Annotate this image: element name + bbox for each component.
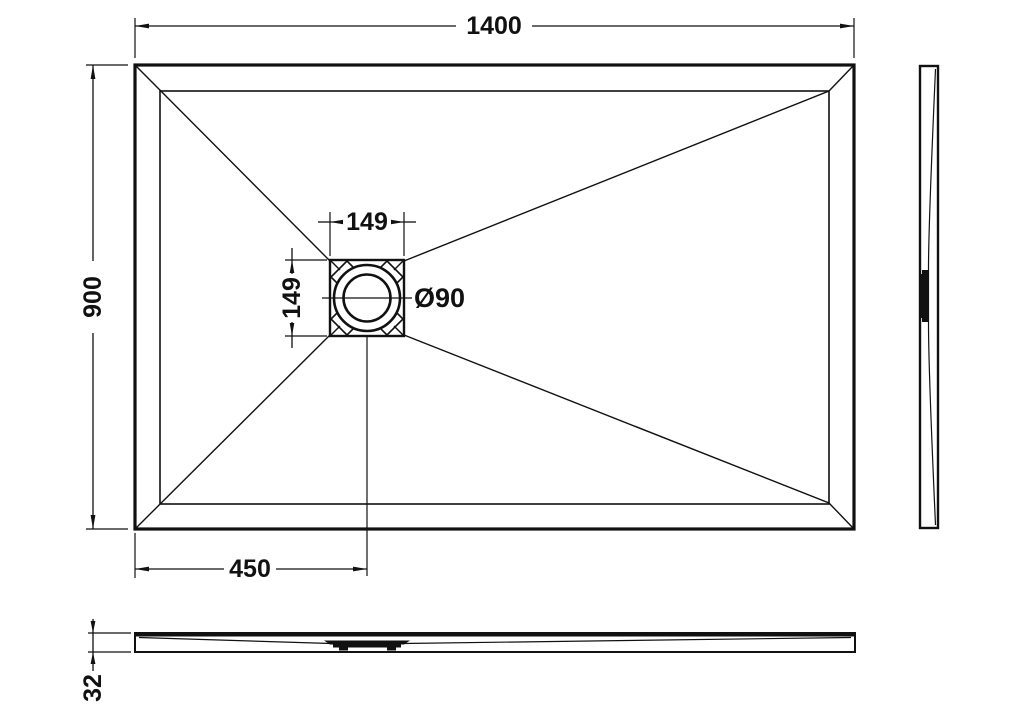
dim-diameter: Ø90 [414, 283, 465, 313]
rotated-label: 149 [278, 274, 306, 322]
arrowhead-up [91, 652, 96, 664]
dim-label-drain-offset: 450 [229, 555, 271, 583]
arrowhead-up [91, 65, 96, 79]
dim-label-thickness: 32 [79, 674, 107, 702]
rotated-label: 32 [79, 674, 107, 702]
arrowhead-right [353, 567, 367, 572]
plan-view [135, 65, 854, 529]
arrowhead-left [135, 24, 149, 29]
drain-waste [322, 260, 412, 336]
shower-tray-technical-drawing: 1400 900 149 149 [0, 0, 1024, 724]
dim-label-width: 1400 [466, 12, 522, 40]
tray-outer-rim [135, 65, 854, 529]
dim-label-drain-width: 149 [346, 208, 388, 236]
dim-label-depth: 900 [79, 276, 107, 318]
arrowhead-down [91, 621, 96, 633]
rotated-label: 900 [79, 261, 107, 333]
drawing-canvas: 1400 900 149 149 [0, 0, 1024, 724]
dim-1400: 1400 [135, 12, 854, 58]
dim-900: 900 [79, 65, 128, 529]
arrowhead-left [135, 567, 149, 572]
side-view [919, 66, 938, 528]
side-slope-line [929, 69, 936, 525]
profile-slope-right [403, 638, 851, 644]
side-drain-boss [919, 270, 928, 322]
dim-32: 32 [79, 619, 131, 702]
profile-slope-left [139, 638, 331, 644]
dim-label-drain-height: 149 [278, 277, 306, 319]
arrowhead-down [91, 515, 96, 529]
profile-view [135, 633, 855, 652]
arrowhead-right [840, 24, 854, 29]
dim-label-drain-diameter: Ø90 [414, 283, 465, 313]
profile-drain-boss [324, 641, 410, 651]
